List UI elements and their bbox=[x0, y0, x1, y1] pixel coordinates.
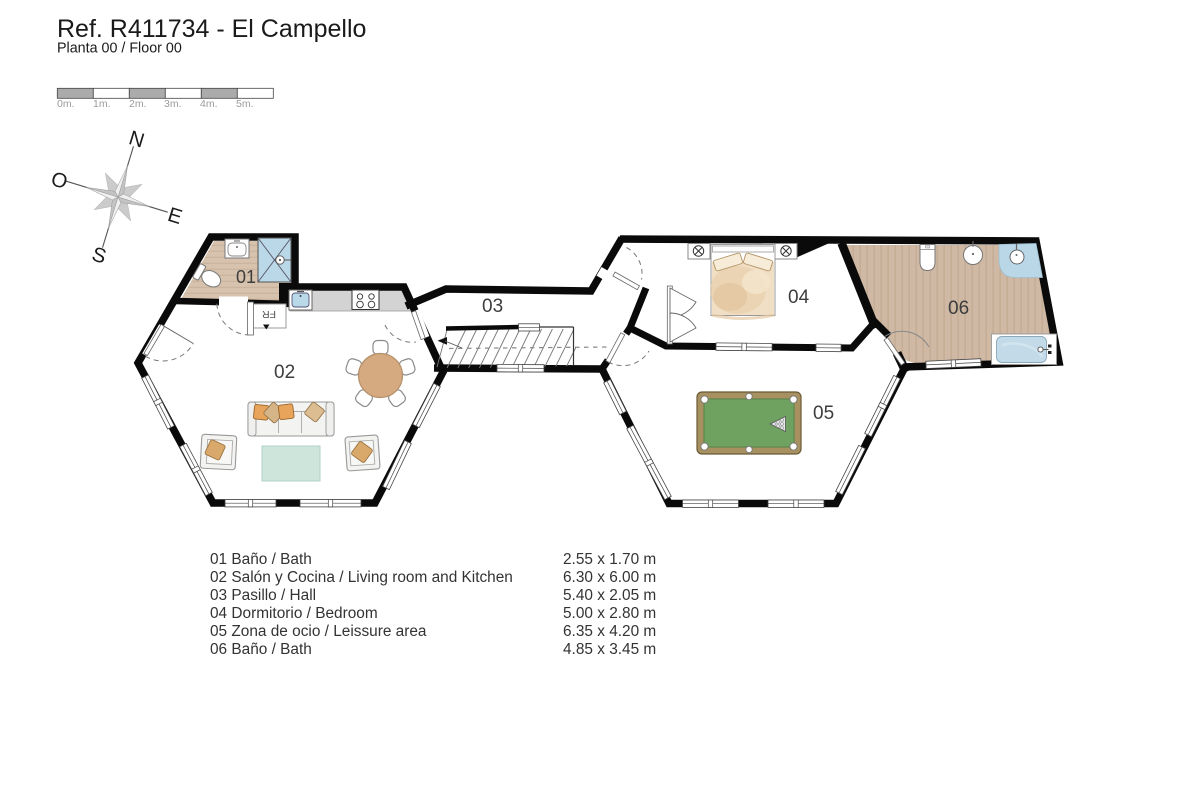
svg-text:01: 01 bbox=[236, 267, 256, 287]
svg-text:4.85 x 3.45 m: 4.85 x 3.45 m bbox=[563, 641, 656, 658]
svg-text:5m.: 5m. bbox=[236, 98, 254, 110]
svg-text:03 Pasillo / Hall: 03 Pasillo / Hall bbox=[210, 587, 316, 604]
svg-text:2.55 x 1.70 m: 2.55 x 1.70 m bbox=[563, 551, 656, 568]
svg-text:1m.: 1m. bbox=[93, 98, 111, 110]
svg-text:N: N bbox=[126, 126, 147, 152]
svg-text:6.30 x 6.00 m: 6.30 x 6.00 m bbox=[563, 569, 656, 586]
svg-text:Planta 00 / Floor 00: Planta 00 / Floor 00 bbox=[57, 41, 182, 57]
svg-text:04: 04 bbox=[788, 287, 810, 308]
svg-text:05 Zona de ocio / Leissure are: 05 Zona de ocio / Leissure area bbox=[210, 623, 427, 640]
svg-text:4m.: 4m. bbox=[200, 98, 218, 110]
svg-text:2m.: 2m. bbox=[129, 98, 147, 110]
svg-text:Ref. R411734 - El Campello: Ref. R411734 - El Campello bbox=[57, 15, 366, 43]
svg-text:S: S bbox=[89, 243, 109, 269]
svg-text:E: E bbox=[165, 203, 185, 229]
svg-text:5.40 x 2.05 m: 5.40 x 2.05 m bbox=[563, 587, 656, 604]
svg-text:3m.: 3m. bbox=[164, 98, 182, 110]
svg-text:FR: FR bbox=[262, 308, 276, 320]
svg-text:04 Dormitorio / Bedroom: 04 Dormitorio / Bedroom bbox=[210, 605, 378, 622]
svg-text:02: 02 bbox=[274, 362, 295, 383]
svg-text:03: 03 bbox=[482, 296, 503, 317]
svg-text:05: 05 bbox=[813, 403, 834, 424]
svg-text:06 Baño / Bath: 06 Baño / Bath bbox=[210, 641, 312, 658]
svg-text:5.00 x 2.80 m: 5.00 x 2.80 m bbox=[563, 605, 656, 622]
svg-text:O: O bbox=[48, 167, 70, 194]
svg-text:02 Salón y Cocina / Living roo: 02 Salón y Cocina / Living room and Kitc… bbox=[210, 569, 513, 586]
svg-text:6.35 x 4.20 m: 6.35 x 4.20 m bbox=[563, 623, 656, 640]
svg-text:01 Baño / Bath: 01 Baño / Bath bbox=[210, 551, 312, 568]
svg-text:06: 06 bbox=[948, 298, 969, 319]
svg-text:0m.: 0m. bbox=[57, 98, 75, 110]
